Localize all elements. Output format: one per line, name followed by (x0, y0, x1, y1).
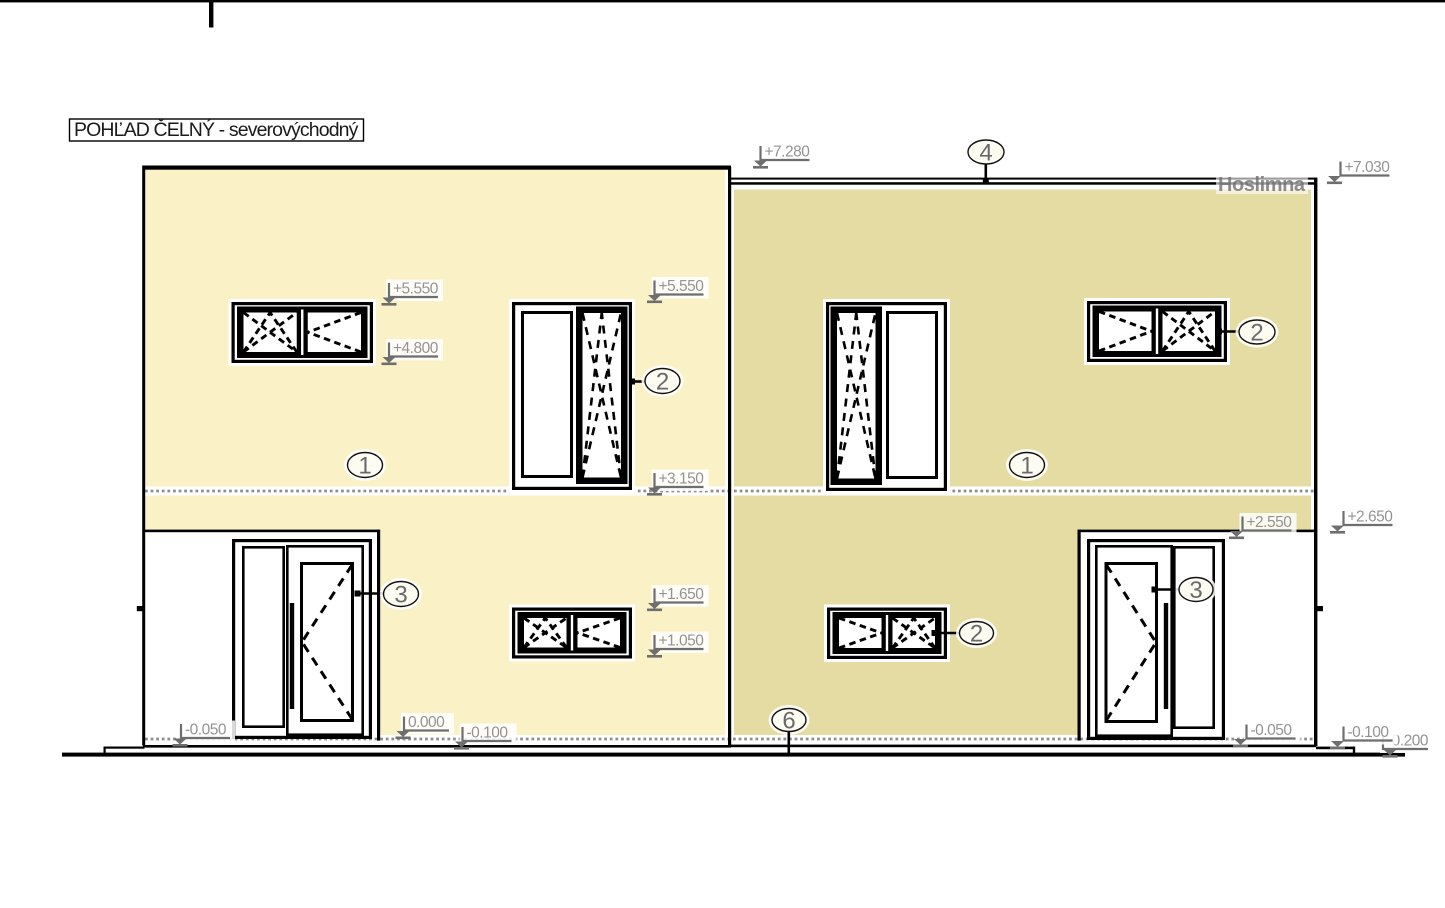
svg-text:+7.280: +7.280 (765, 144, 811, 161)
svg-text:+3.150: +3.150 (659, 471, 705, 488)
svg-text:-0.050: -0.050 (185, 722, 227, 739)
svg-text:+7.030: +7.030 (1345, 159, 1391, 176)
svg-text:6: 6 (782, 708, 795, 735)
svg-text:2: 2 (1250, 320, 1263, 347)
svg-text:+2.650: +2.650 (1348, 509, 1394, 526)
svg-text:+4.800: +4.800 (393, 340, 439, 357)
svg-text:+5.550: +5.550 (659, 278, 705, 295)
svg-text:POHĽAD ČELNÝ - severovýchodný: POHĽAD ČELNÝ - severovýchodný (74, 118, 359, 141)
svg-text:3: 3 (1189, 577, 1202, 604)
svg-text:+2.550: +2.550 (1247, 514, 1293, 531)
svg-text:4: 4 (979, 140, 992, 167)
svg-text:-0.100: -0.100 (467, 725, 509, 742)
svg-text:1: 1 (358, 453, 371, 480)
svg-text:0.000: 0.000 (408, 714, 445, 731)
svg-text:+1.650: +1.650 (659, 586, 705, 603)
svg-text:1: 1 (1020, 453, 1033, 480)
svg-text:+5.550: +5.550 (393, 281, 439, 298)
svg-text:2: 2 (656, 369, 669, 396)
svg-text:2: 2 (970, 621, 983, 648)
svg-text:3: 3 (394, 582, 407, 609)
svg-text:Hoslimna: Hoslimna (1218, 174, 1306, 196)
svg-text:-0.100: -0.100 (1348, 724, 1390, 741)
svg-text:+1.050: +1.050 (659, 633, 705, 650)
svg-text:-0.050: -0.050 (1251, 722, 1293, 739)
